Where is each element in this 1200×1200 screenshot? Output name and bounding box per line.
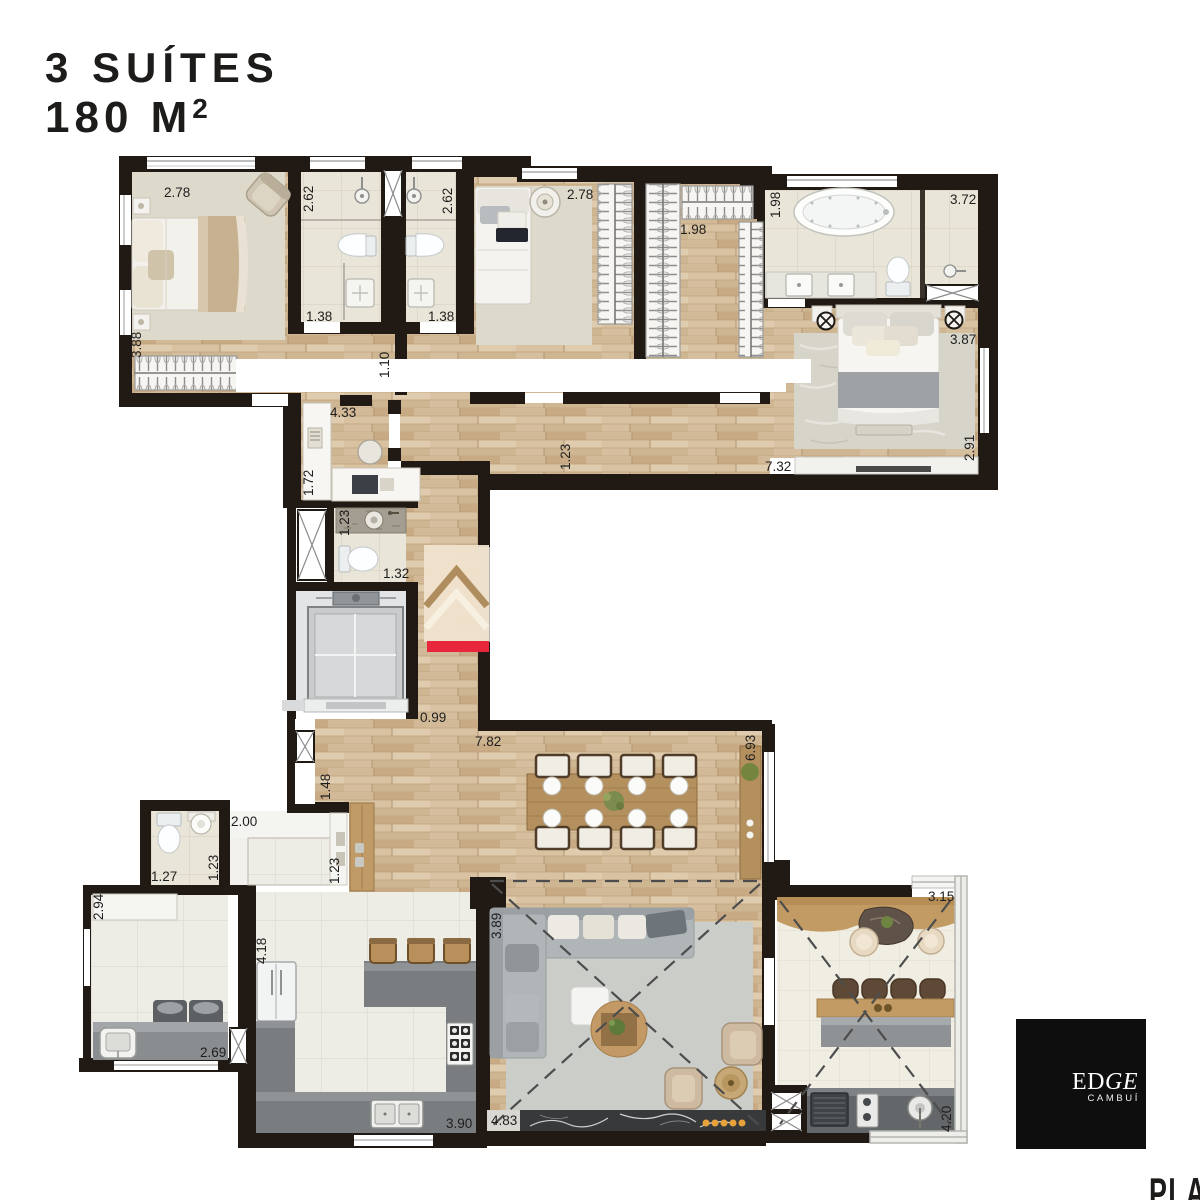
- svg-text:7.32: 7.32: [765, 459, 791, 474]
- svg-text:1.23: 1.23: [206, 855, 221, 881]
- svg-text:0.99: 0.99: [420, 710, 446, 725]
- svg-text:7.82: 7.82: [475, 734, 501, 749]
- svg-text:1.72: 1.72: [301, 470, 316, 496]
- svg-text:3.87: 3.87: [950, 332, 976, 347]
- svg-text:2.62: 2.62: [440, 188, 455, 214]
- svg-text:3 SUÍTES: 3 SUÍTES: [45, 44, 280, 91]
- svg-text:1.98: 1.98: [680, 222, 706, 237]
- svg-text:2.91: 2.91: [962, 435, 977, 461]
- svg-text:1.10: 1.10: [377, 352, 392, 378]
- svg-text:4.83: 4.83: [491, 1113, 517, 1128]
- svg-text:3.88: 3.88: [129, 332, 144, 358]
- svg-text:PLAN: PLAN: [1149, 1170, 1200, 1200]
- svg-text:6.93: 6.93: [743, 735, 758, 761]
- svg-text:2.00: 2.00: [231, 814, 257, 829]
- svg-text:2.62: 2.62: [301, 186, 316, 212]
- svg-text:2.94: 2.94: [91, 893, 106, 920]
- svg-text:1.32: 1.32: [383, 566, 409, 581]
- svg-text:EDGE: EDGE: [1072, 1069, 1138, 1095]
- svg-text:1.38: 1.38: [428, 309, 454, 324]
- svg-text:2.78: 2.78: [164, 185, 190, 200]
- svg-text:3.89: 3.89: [489, 913, 504, 939]
- svg-text:1.23: 1.23: [337, 510, 352, 536]
- svg-text:3.15: 3.15: [928, 889, 954, 904]
- svg-text:2.78: 2.78: [567, 187, 593, 202]
- svg-text:180 M2: 180 M2: [45, 93, 213, 142]
- svg-text:4.33: 4.33: [330, 405, 356, 420]
- svg-text:4.20: 4.20: [939, 1106, 954, 1132]
- svg-text:1.98: 1.98: [768, 192, 783, 218]
- svg-text:4.18: 4.18: [254, 938, 269, 964]
- svg-text:CAMBUÍ: CAMBUÍ: [1087, 1093, 1140, 1104]
- svg-text:1.48: 1.48: [318, 774, 333, 800]
- svg-text:1.27: 1.27: [151, 869, 177, 884]
- svg-text:3.90: 3.90: [446, 1116, 472, 1131]
- svg-text:1.38: 1.38: [306, 309, 332, 324]
- svg-text:2.69: 2.69: [200, 1045, 226, 1060]
- svg-text:1.23: 1.23: [327, 858, 342, 884]
- svg-text:3.72: 3.72: [950, 192, 976, 207]
- svg-text:1.23: 1.23: [558, 444, 573, 470]
